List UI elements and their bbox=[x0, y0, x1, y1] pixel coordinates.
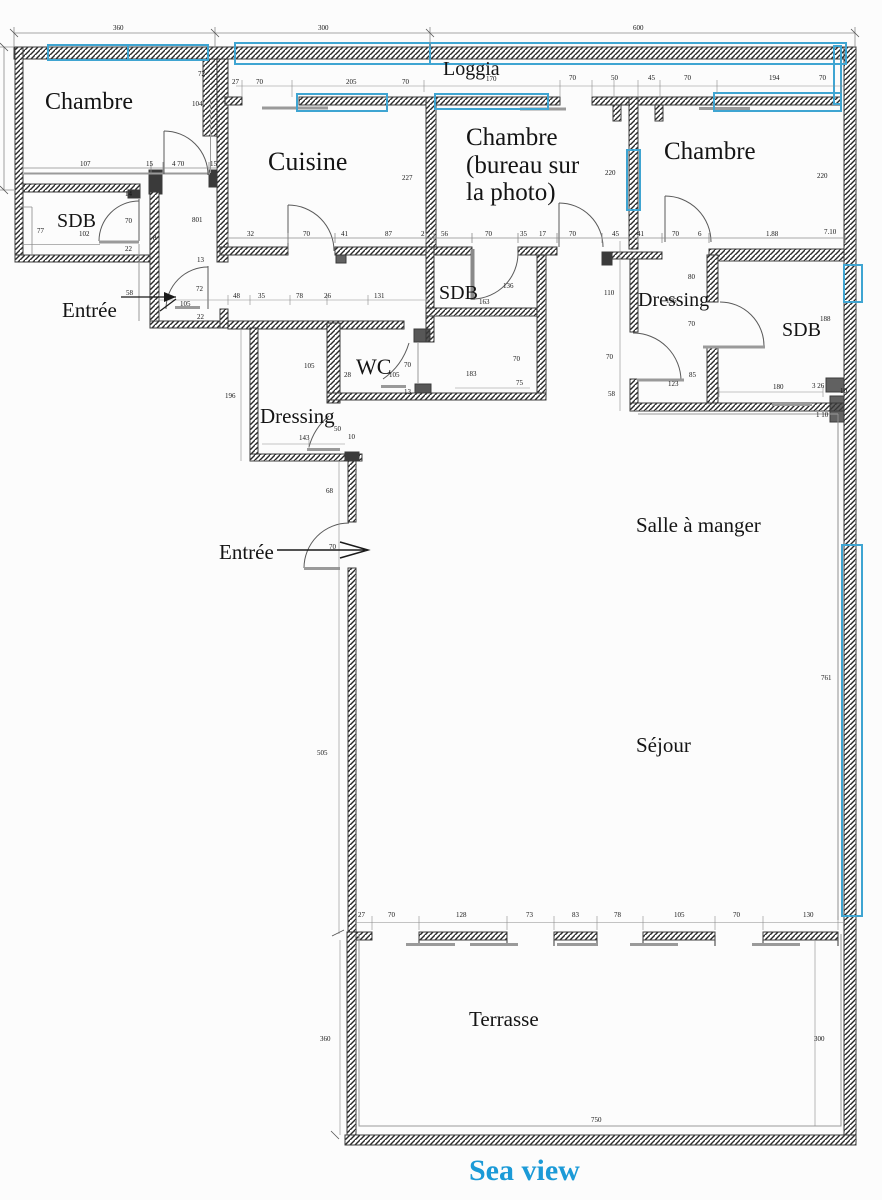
svg-text:3 26: 3 26 bbox=[812, 382, 825, 390]
svg-text:360: 360 bbox=[320, 1035, 331, 1043]
svg-text:la photo): la photo) bbox=[466, 179, 556, 206]
svg-text:SDB: SDB bbox=[439, 282, 478, 304]
svg-text:7.10: 7.10 bbox=[824, 228, 837, 236]
svg-text:105: 105 bbox=[389, 371, 400, 379]
svg-text:70: 70 bbox=[256, 78, 264, 86]
svg-text:227: 227 bbox=[402, 174, 413, 182]
svg-text:32: 32 bbox=[247, 230, 255, 238]
svg-text:70: 70 bbox=[402, 78, 410, 86]
svg-text:70: 70 bbox=[569, 74, 577, 82]
svg-text:45: 45 bbox=[648, 74, 656, 82]
svg-text:WC: WC bbox=[356, 354, 391, 379]
svg-text:300: 300 bbox=[318, 24, 329, 32]
svg-text:123: 123 bbox=[668, 380, 679, 388]
svg-text:13: 13 bbox=[197, 256, 205, 264]
svg-text:136: 136 bbox=[503, 282, 514, 290]
svg-text:220: 220 bbox=[605, 169, 616, 177]
svg-text:300: 300 bbox=[814, 1035, 825, 1043]
svg-text:70: 70 bbox=[513, 355, 521, 363]
svg-text:70: 70 bbox=[485, 230, 493, 238]
svg-text:35: 35 bbox=[520, 230, 528, 238]
svg-text:Chambre: Chambre bbox=[664, 138, 756, 165]
svg-text:Entrée: Entrée bbox=[219, 540, 274, 564]
svg-text:188: 188 bbox=[820, 315, 831, 323]
svg-text:750: 750 bbox=[591, 1116, 602, 1124]
svg-text:14: 14 bbox=[125, 190, 133, 198]
svg-text:15: 15 bbox=[210, 160, 218, 168]
svg-text:70: 70 bbox=[329, 543, 337, 551]
svg-text:83: 83 bbox=[572, 911, 580, 919]
svg-text:4 70: 4 70 bbox=[172, 160, 185, 168]
svg-text:70: 70 bbox=[404, 361, 412, 369]
svg-text:SDB: SDB bbox=[782, 319, 821, 341]
svg-text:SDB: SDB bbox=[57, 210, 96, 232]
svg-text:17: 17 bbox=[539, 230, 547, 238]
svg-text:70: 70 bbox=[606, 353, 614, 361]
svg-text:41: 41 bbox=[637, 230, 645, 238]
svg-text:136: 136 bbox=[666, 297, 677, 305]
svg-text:128: 128 bbox=[456, 911, 467, 919]
svg-text:50: 50 bbox=[611, 74, 619, 82]
svg-text:163: 163 bbox=[479, 298, 490, 306]
svg-text:35: 35 bbox=[258, 292, 266, 300]
svg-text:48: 48 bbox=[233, 292, 241, 300]
svg-text:110: 110 bbox=[604, 289, 615, 297]
svg-text:801: 801 bbox=[192, 216, 203, 224]
svg-text:8: 8 bbox=[153, 234, 157, 242]
svg-text:28: 28 bbox=[344, 371, 352, 379]
svg-text:105: 105 bbox=[304, 362, 315, 370]
svg-text:107: 107 bbox=[80, 160, 91, 168]
svg-text:73: 73 bbox=[526, 911, 534, 919]
svg-text:205: 205 bbox=[346, 78, 357, 86]
svg-text:80: 80 bbox=[688, 273, 696, 281]
svg-text:170: 170 bbox=[486, 75, 497, 83]
svg-text:58: 58 bbox=[126, 289, 134, 297]
svg-text:70: 70 bbox=[672, 230, 680, 238]
svg-text:105: 105 bbox=[180, 300, 191, 308]
svg-text:2: 2 bbox=[421, 230, 425, 238]
svg-text:70: 70 bbox=[684, 74, 692, 82]
svg-text:27: 27 bbox=[358, 911, 366, 919]
svg-text:70: 70 bbox=[733, 911, 741, 919]
svg-text:72: 72 bbox=[196, 285, 204, 293]
svg-text:600: 600 bbox=[633, 24, 644, 32]
svg-text:70: 70 bbox=[819, 74, 827, 82]
svg-text:Cuisine: Cuisine bbox=[268, 147, 347, 176]
svg-text:105: 105 bbox=[674, 911, 685, 919]
svg-text:15: 15 bbox=[146, 160, 154, 168]
svg-text:143: 143 bbox=[299, 434, 310, 442]
svg-text:70: 70 bbox=[125, 217, 133, 225]
svg-text:70: 70 bbox=[688, 320, 696, 328]
svg-text:1.88: 1.88 bbox=[766, 230, 779, 238]
svg-text:50: 50 bbox=[334, 425, 342, 433]
svg-text:Entrée: Entrée bbox=[62, 298, 117, 322]
svg-text:75: 75 bbox=[516, 379, 524, 387]
svg-text:Dressing: Dressing bbox=[260, 404, 335, 428]
svg-text:78: 78 bbox=[296, 292, 304, 300]
svg-text:87: 87 bbox=[385, 230, 393, 238]
svg-text:22: 22 bbox=[125, 245, 133, 253]
svg-text:41: 41 bbox=[341, 230, 349, 238]
svg-text:70: 70 bbox=[569, 230, 577, 238]
svg-text:26: 26 bbox=[324, 292, 332, 300]
svg-text:1 10: 1 10 bbox=[816, 411, 829, 419]
svg-text:13: 13 bbox=[404, 388, 412, 396]
svg-text:10: 10 bbox=[348, 433, 356, 441]
svg-text:(bureau sur: (bureau sur bbox=[466, 152, 580, 179]
svg-text:183: 183 bbox=[466, 370, 477, 378]
svg-text:360: 360 bbox=[113, 24, 124, 32]
svg-text:70: 70 bbox=[388, 911, 396, 919]
svg-text:Séjour: Séjour bbox=[636, 733, 691, 757]
svg-text:77: 77 bbox=[37, 227, 45, 235]
svg-text:6: 6 bbox=[698, 230, 702, 238]
svg-text:78: 78 bbox=[614, 911, 622, 919]
svg-text:56: 56 bbox=[441, 230, 449, 238]
svg-text:Sea view: Sea view bbox=[469, 1154, 580, 1187]
svg-text:102: 102 bbox=[79, 230, 90, 238]
svg-text:220: 220 bbox=[817, 172, 828, 180]
svg-text:Chambre: Chambre bbox=[466, 124, 558, 151]
svg-text:58: 58 bbox=[608, 390, 616, 398]
svg-text:131: 131 bbox=[374, 292, 385, 300]
svg-text:22: 22 bbox=[197, 313, 205, 321]
svg-text:45: 45 bbox=[612, 230, 620, 238]
svg-text:27: 27 bbox=[232, 78, 240, 86]
svg-text:85: 85 bbox=[689, 371, 697, 379]
svg-text:68: 68 bbox=[326, 487, 334, 495]
svg-text:505: 505 bbox=[317, 749, 328, 757]
svg-text:130: 130 bbox=[803, 911, 814, 919]
svg-text:72: 72 bbox=[198, 70, 206, 78]
svg-text:70: 70 bbox=[303, 230, 311, 238]
svg-text:104: 104 bbox=[192, 100, 203, 108]
svg-text:194: 194 bbox=[769, 74, 780, 82]
svg-text:196: 196 bbox=[225, 392, 236, 400]
svg-text:Terrasse: Terrasse bbox=[469, 1007, 539, 1031]
svg-text:Chambre: Chambre bbox=[45, 89, 133, 115]
svg-text:10: 10 bbox=[840, 387, 848, 395]
svg-text:180: 180 bbox=[773, 383, 784, 391]
svg-text:761: 761 bbox=[821, 674, 832, 682]
svg-text:Salle à manger: Salle à manger bbox=[636, 513, 761, 537]
